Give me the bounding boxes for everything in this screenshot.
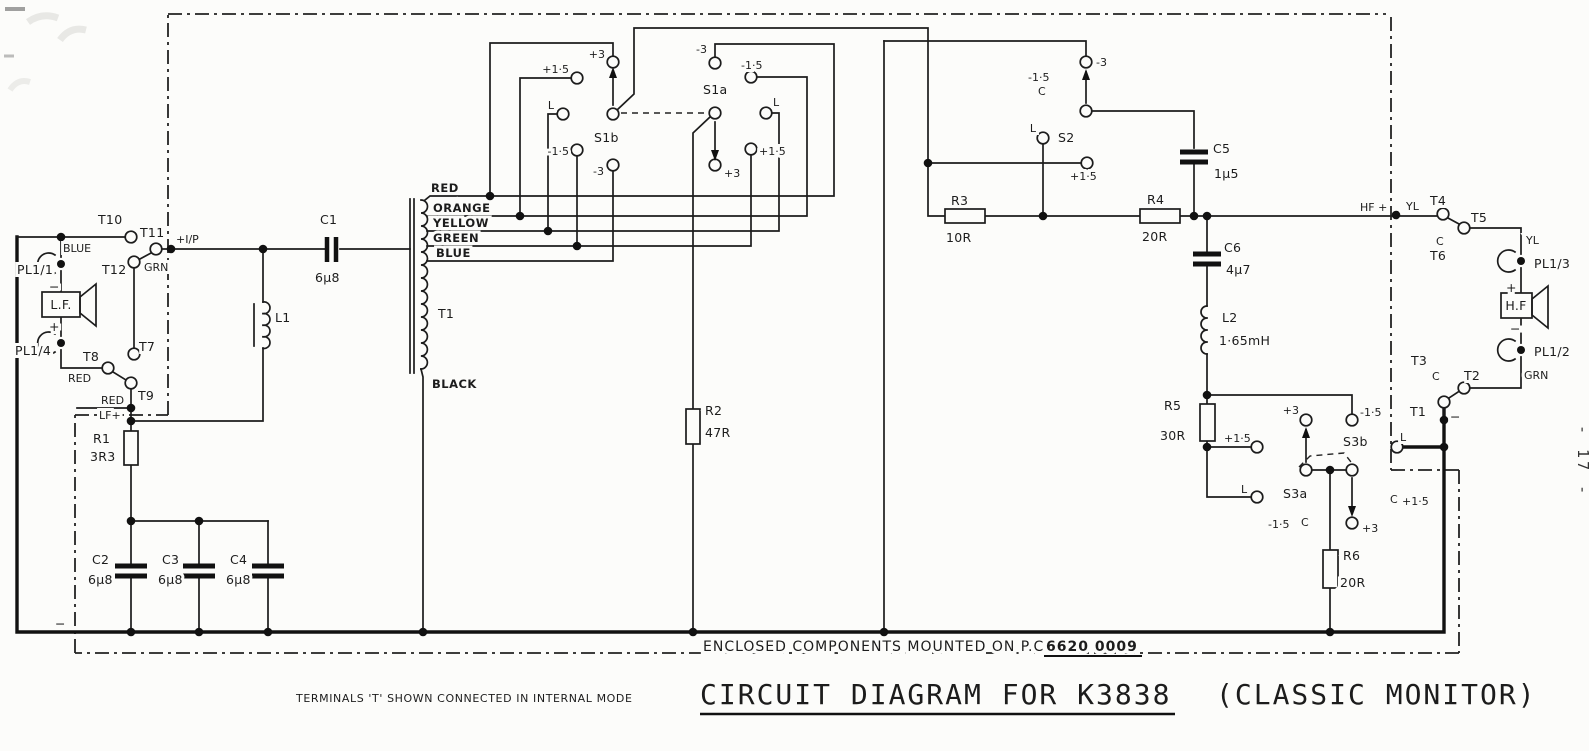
label-t11: T11: [139, 225, 164, 240]
s1b-pivot: [607, 108, 619, 120]
label-t3: T3: [1410, 353, 1427, 368]
inductor-l1: [254, 302, 270, 349]
label-t9: T9: [137, 388, 154, 403]
label-s3a-link: L: [1241, 483, 1248, 496]
label-yl-2: YL: [1525, 234, 1540, 247]
label-pl1-1: PL1/1: [17, 262, 53, 277]
label-s1a-link: L: [773, 96, 780, 109]
label-s3a-plus3: +3: [1283, 404, 1299, 417]
terminal-t2: [1458, 382, 1470, 394]
wire-arm-t8-t9: [113, 372, 126, 380]
switch-wipers: [609, 67, 1356, 517]
label-t10: T10: [97, 212, 122, 227]
label-s2-plus15: +1·5: [1070, 170, 1097, 183]
label-wire-red-1: RED: [68, 372, 91, 385]
page-number: - 17 -: [1574, 425, 1589, 497]
resistor-r2: [686, 409, 700, 444]
label-pl1-4: PL1/4: [15, 343, 51, 358]
label-hf-minus-sign: −: [1510, 321, 1521, 336]
wire-arm-t11-t12: [140, 253, 151, 259]
label-r5-value: 30R: [1160, 428, 1186, 443]
circuit-diagram: T10 T11 T12 T7 T8 T9 BLUE GRN +I/P PL1/1…: [0, 0, 1589, 751]
s3a-pivot: [1300, 464, 1312, 476]
label-s2: S2: [1058, 130, 1075, 145]
s3a-contact-plus3: [1300, 414, 1312, 426]
label-s3b-minus15: -1·5: [1360, 406, 1381, 419]
page-subtitle: (CLASSIC MONITOR): [1216, 678, 1537, 711]
label-wire-blue: BLUE: [63, 242, 91, 255]
label-tap-black: BLACK: [432, 377, 477, 391]
label-tap-green: GREEN: [433, 231, 479, 245]
label-lf-speaker: L.F.: [50, 297, 71, 312]
label-s3b-common: C: [1390, 493, 1398, 506]
label-r4-value: 20R: [1142, 229, 1168, 244]
s1a-contact-minus15: [745, 71, 757, 83]
label-lf-plus: LF+: [99, 409, 121, 422]
label-s2-link: L: [1030, 122, 1037, 135]
label-r3: R3: [951, 193, 968, 208]
label-c5: C5: [1213, 141, 1230, 156]
label-tap-red: RED: [431, 181, 459, 195]
wire-s2-pole-c5: [1092, 111, 1194, 148]
wire-arm-t4-t5: [1448, 218, 1459, 224]
label-c2: C2: [92, 552, 109, 567]
capacitor-c4: [252, 566, 284, 576]
capacitor-c2: [115, 566, 147, 576]
s1a-contact-link: [760, 107, 772, 119]
resistor-r3: [945, 209, 985, 223]
label-tap-orange: ORANGE: [433, 201, 490, 215]
s3a-contact-plus15: [1251, 441, 1263, 453]
label-s1a-minus15: -1·5: [741, 59, 762, 72]
label-t1: T1: [1409, 404, 1426, 419]
wire-s1a-pole: [693, 117, 710, 409]
wire-cap-bus-top: [131, 465, 268, 521]
s3b-pivot: [1346, 464, 1358, 476]
label-hf-plus: HF +: [1360, 201, 1387, 214]
wire-s1b-pole: [617, 28, 945, 216]
label-r5: R5: [1164, 398, 1181, 413]
captions: ENCLOSED COMPONENTS MOUNTED ON P.C.B 662…: [295, 425, 1589, 714]
s2-contact-link: [1037, 132, 1049, 144]
label-lf-plus-sign: +: [49, 319, 60, 334]
resistor-r6: [1323, 550, 1338, 588]
wire-tap-red: [425, 44, 834, 200]
label-c2-value: 6µ8: [88, 572, 113, 587]
label-t5: T5: [1470, 210, 1487, 225]
label-s1a-plus15: +1·5: [759, 145, 786, 158]
inductor-l2: [1201, 306, 1207, 354]
label-s3a-minus15: -1·5: [1268, 518, 1289, 531]
label-s2-common: C: [1038, 85, 1046, 98]
label-t1-minus: −: [1450, 409, 1461, 424]
label-r2-value: 47R: [705, 425, 731, 440]
s1b-contact-minus3: [607, 159, 619, 171]
transformer-t1: [410, 199, 427, 373]
label-c1: C1: [320, 212, 337, 227]
s2-contact-minus3: [1080, 56, 1092, 68]
terminal-t9: [125, 377, 137, 389]
label-s3b: S3b: [1343, 434, 1368, 449]
s3a-contact-link: [1251, 491, 1263, 503]
label-c4-value: 6µ8: [226, 572, 251, 587]
label-s1a-plus3: +3: [724, 167, 740, 180]
terminal-circles: [102, 56, 1470, 529]
label-s3a: S3a: [1283, 486, 1307, 501]
label-bus-minus: −: [55, 616, 66, 631]
label-s3a-common: C: [1301, 516, 1309, 529]
page-title: CIRCUIT DIAGRAM FOR K3838: [700, 678, 1171, 711]
s1a-pivot: [709, 107, 721, 119]
label-t3-common: C: [1432, 370, 1440, 383]
label-s3b-plus15: +1·5: [1402, 495, 1429, 508]
label-t2: T2: [1463, 368, 1480, 383]
label-s2-minus15: -1·5: [1028, 71, 1049, 84]
label-tap-yellow: YELLOW: [432, 216, 489, 230]
label-transformer-t1: T1: [437, 306, 454, 321]
label-t12: T12: [101, 262, 126, 277]
label-r1-value: 3R3: [90, 449, 116, 464]
label-l1: L1: [275, 310, 291, 325]
label-wire-red-2: RED: [101, 394, 124, 407]
terminal-t5: [1458, 222, 1470, 234]
label-hf-speaker: H.F: [1505, 298, 1526, 313]
label-s1b-plus3: +3: [589, 48, 605, 61]
label-t8: T8: [82, 349, 99, 364]
resistor-r5: [1200, 404, 1215, 441]
label-s1a-minus3: -3: [696, 43, 707, 56]
label-s1b-minus3: -3: [593, 165, 604, 178]
terminal-t4: [1437, 208, 1449, 220]
schematic-page: T10 T11 T12 T7 T8 T9 BLUE GRN +I/P PL1/1…: [0, 0, 1589, 751]
capacitor-c1: [327, 237, 336, 262]
label-c3-value: 6µ8: [158, 572, 183, 587]
label-input: +I/P: [176, 233, 199, 246]
s1a-contact-plus15: [745, 143, 757, 155]
label-s3b-link: L: [1400, 431, 1407, 444]
label-s3a-plus15: +1·5: [1224, 432, 1251, 445]
label-l2: L2: [1222, 310, 1238, 325]
s3b-contact-minus15: [1346, 414, 1358, 426]
capacitor-c3: [183, 566, 215, 576]
s1a-contact-minus3: [709, 57, 721, 69]
label-c6-value: 4µ7: [1226, 262, 1251, 277]
scan-artifact: [4, 9, 86, 90]
resistor-r4: [1140, 209, 1180, 223]
s1b-contact-plus3: [607, 56, 619, 68]
label-s1b-link: L: [548, 99, 555, 112]
resistor-r1: [124, 431, 138, 465]
label-tap-blue: BLUE: [436, 246, 471, 260]
terminal-t11: [150, 243, 162, 255]
label-r2: R2: [705, 403, 722, 418]
label-t6: T6: [1429, 248, 1446, 263]
label-s1b-minus15: -1·5: [548, 145, 569, 158]
label-s1b-plus15: +1·5: [542, 63, 569, 76]
label-c3: C3: [162, 552, 179, 567]
label-t6-common: C: [1436, 235, 1444, 248]
label-t4: T4: [1429, 193, 1446, 208]
pcb-number: 6620 0009: [1046, 639, 1138, 655]
note-terminals: TERMINALS 'T' SHOWN CONNECTED IN INTERNA…: [295, 692, 633, 705]
label-s1a: S1a: [703, 82, 727, 97]
label-r4: R4: [1147, 192, 1164, 207]
wire-s2-minus3-top: [884, 41, 1086, 56]
s1b-contact-link: [557, 108, 569, 120]
label-r6: R6: [1343, 548, 1360, 563]
s1b-contact-minus15: [571, 144, 583, 156]
capacitor-c5: [1180, 152, 1208, 162]
label-r6-value: 20R: [1340, 575, 1366, 590]
s2-pivot: [1080, 105, 1092, 117]
s2-contact-plus15: [1081, 157, 1093, 169]
label-c4: C4: [230, 552, 247, 567]
s1b-contact-plus15: [571, 72, 583, 84]
label-s3b-plus3: +3: [1362, 522, 1378, 535]
labels: T10 T11 T12 T7 T8 T9 BLUE GRN +I/P PL1/1…: [15, 43, 1570, 631]
label-yl-1: YL: [1405, 200, 1420, 213]
wire-arm-t2-t1: [1449, 392, 1458, 398]
label-c6: C6: [1224, 240, 1241, 255]
terminal-t8: [102, 362, 114, 374]
label-pl1-3: PL1/3: [1534, 256, 1570, 271]
label-c5-value: 1µ5: [1214, 166, 1239, 181]
label-r3-value: 10R: [946, 230, 972, 245]
label-l2-value: 1·65mH: [1219, 333, 1270, 348]
label-c1-value: 6µ8: [315, 270, 340, 285]
label-hf-plus-sign: +: [1506, 280, 1517, 295]
wire-s1b-link: [548, 114, 557, 231]
label-s1b: S1b: [594, 130, 619, 145]
label-t7: T7: [138, 339, 155, 354]
note-enclosed: ENCLOSED COMPONENTS MOUNTED ON P.C.B: [703, 639, 1060, 655]
label-wire-grn: GRN: [144, 261, 168, 274]
s3b-contact-plus3: [1346, 517, 1358, 529]
label-lf-minus: −: [49, 279, 60, 294]
capacitor-c6: [1193, 254, 1221, 264]
wire-r5-s3b-minus15: [1207, 395, 1352, 414]
terminal-t10: [125, 231, 137, 243]
wire-tap-black: [421, 369, 423, 632]
label-pl1-2: PL1/2: [1534, 344, 1570, 359]
label-s2-minus3: -3: [1096, 56, 1107, 69]
terminal-t1: [1438, 396, 1450, 408]
label-wire-grn-2: GRN: [1524, 369, 1548, 382]
label-r1: R1: [93, 431, 110, 446]
terminal-t12: [128, 256, 140, 268]
